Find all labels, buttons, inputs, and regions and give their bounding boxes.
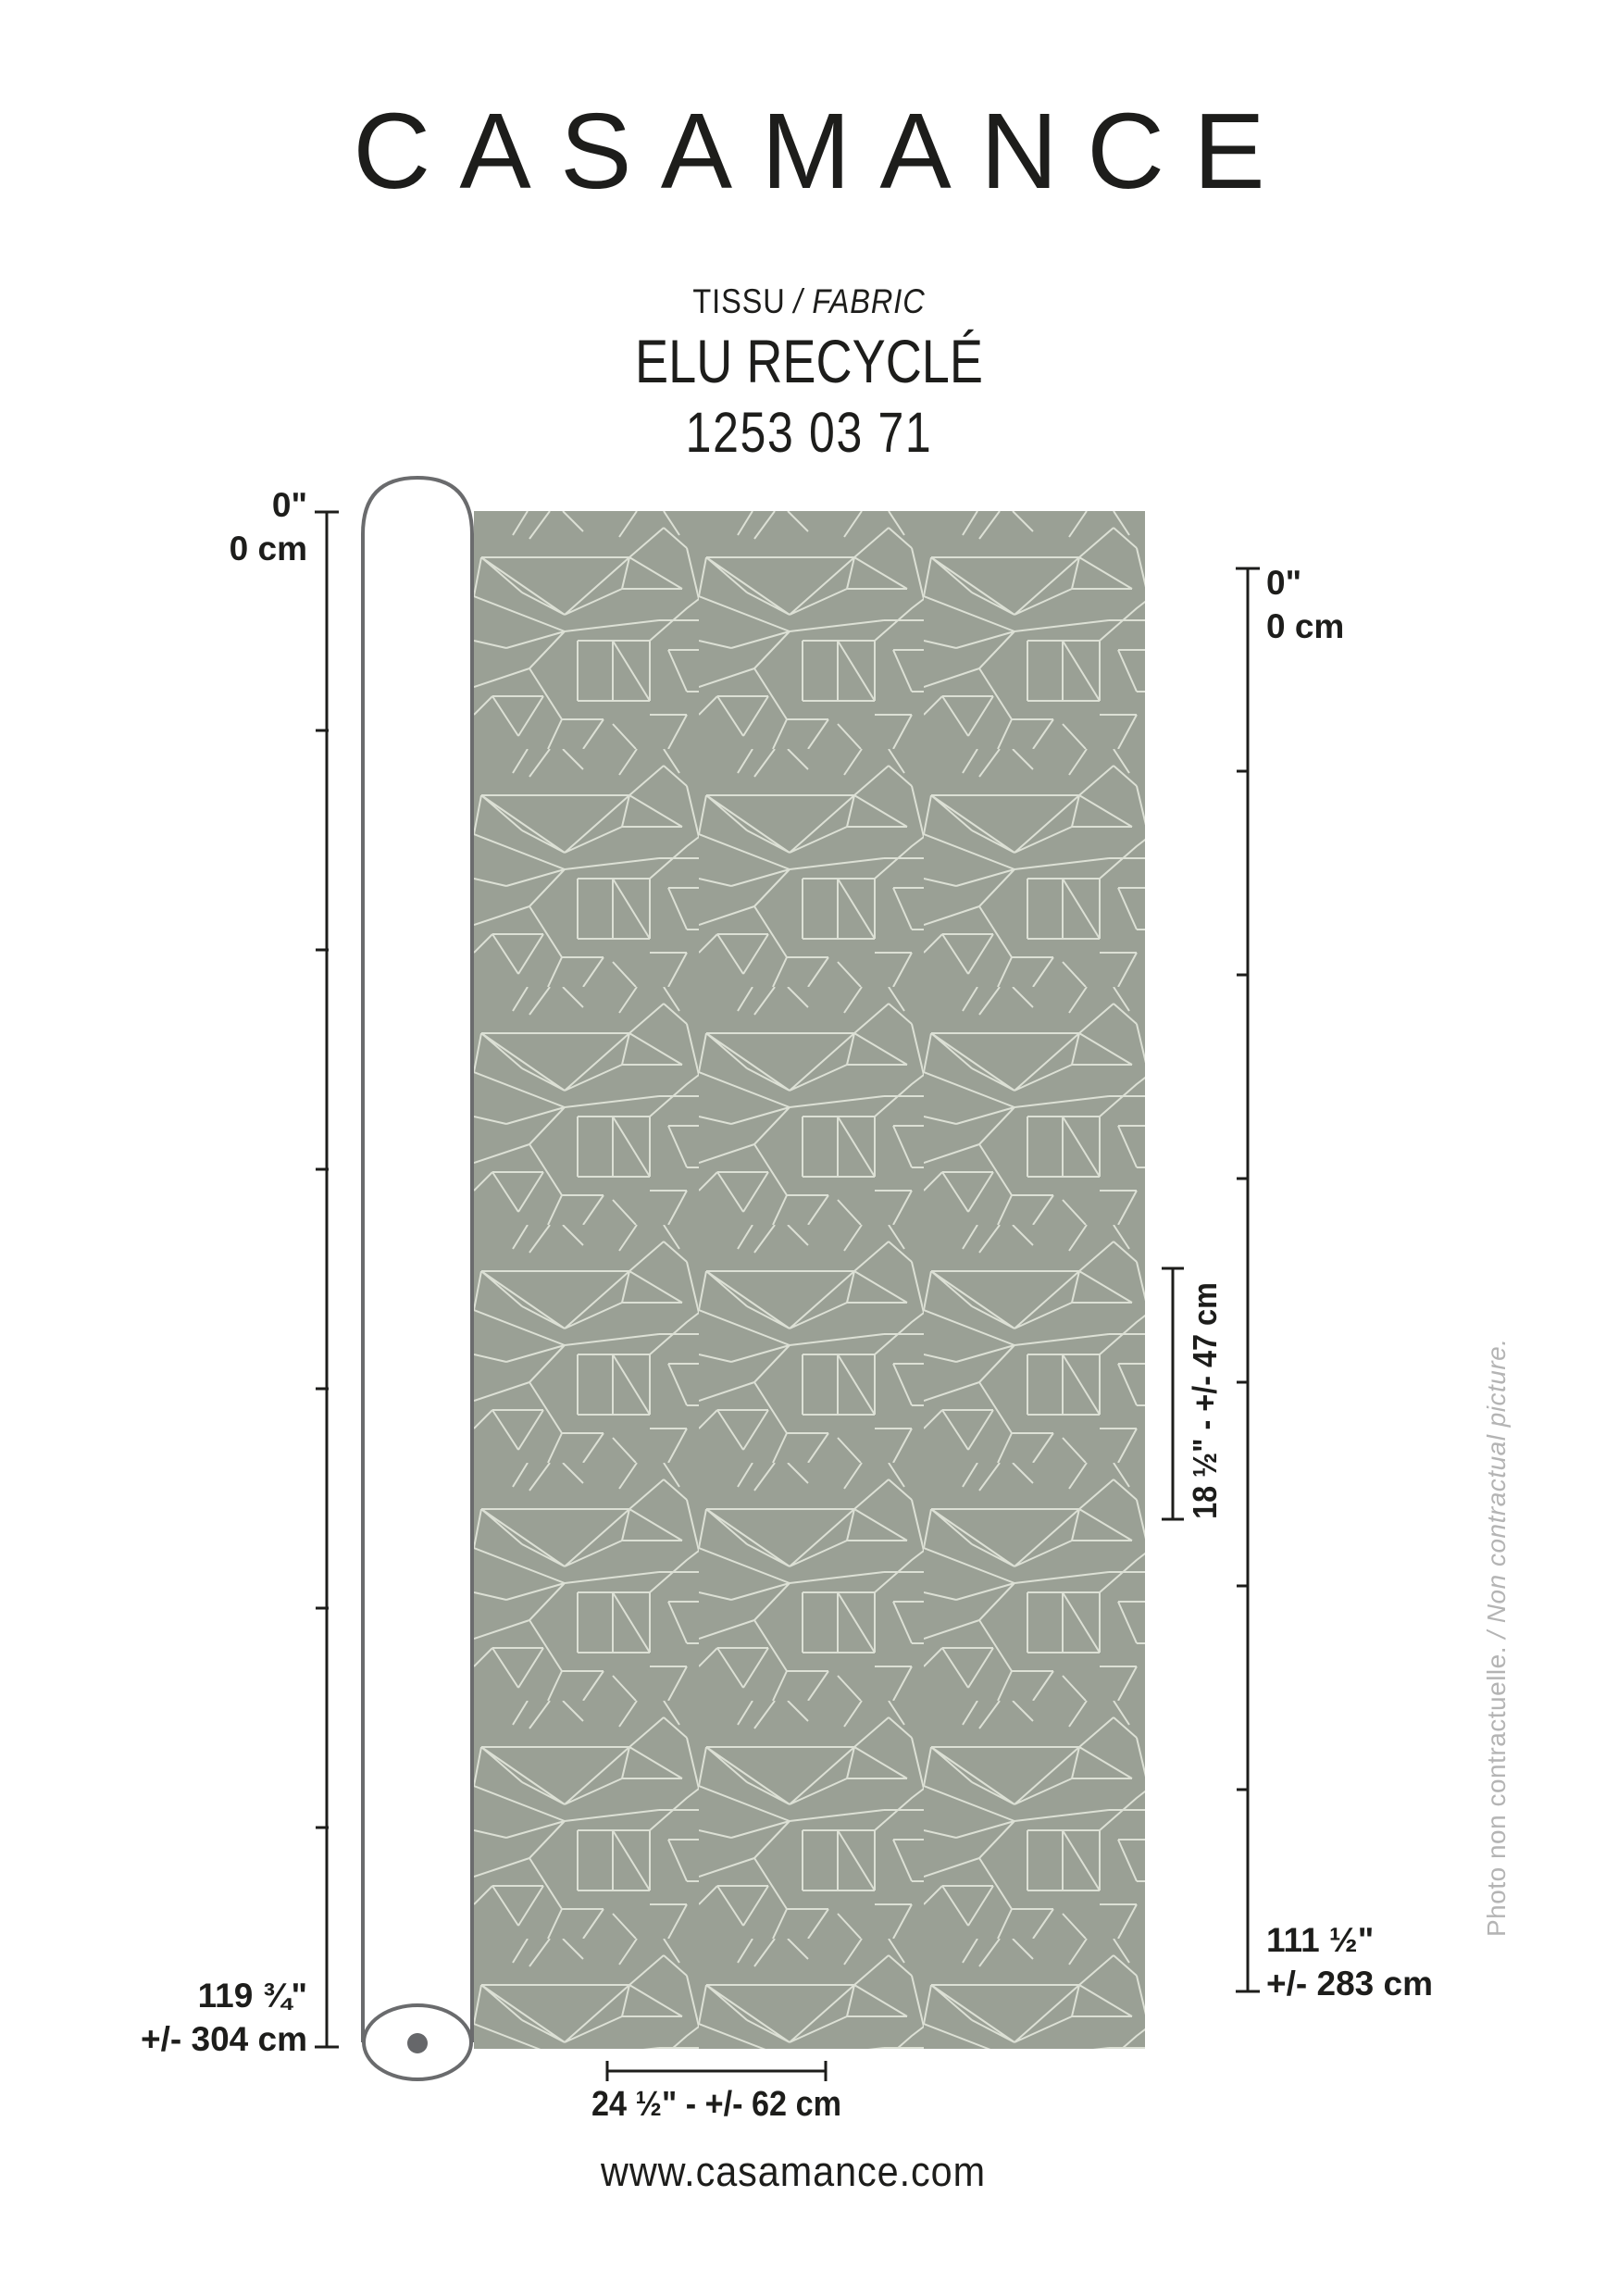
right-top-inches: 0" — [1266, 561, 1344, 605]
vertical-repeat-measure — [1162, 1267, 1184, 1520]
left-bottom-cm: +/- 304 cm — [85, 2017, 307, 2061]
left-bottom-inches: 119 ¾" — [85, 1974, 307, 2017]
fabric-spec-sheet: CASAMANCE TISSU/ FABRIC ELU RECYCLÉ 1253… — [0, 0, 1618, 2296]
horizontal-repeat-measure — [606, 2061, 827, 2081]
right-ruler — [1236, 568, 1260, 1992]
non-contractual-note: Photo non contractuelle. / Non contractu… — [1482, 1326, 1512, 1937]
roll-tube-body — [363, 478, 472, 2042]
right-bottom-inches: 111 ½" — [1266, 1918, 1433, 1962]
left-ruler — [315, 511, 339, 2048]
right-top-cm: 0 cm — [1266, 605, 1344, 648]
note-en: / Non contractual picture. — [1482, 1338, 1511, 1638]
left-top-inches: 0" — [85, 483, 307, 527]
roll-core-dot — [407, 2033, 428, 2053]
left-top-cm: 0 cm — [85, 527, 307, 570]
left-bottom-measurement: 119 ¾" +/- 304 cm — [85, 1974, 307, 2061]
vertical-repeat-label: 18 ½" - +/- 47 cm — [1185, 1276, 1226, 1526]
right-bottom-cm: +/- 283 cm — [1266, 1962, 1433, 2005]
left-top-measurement: 0" 0 cm — [85, 483, 307, 570]
right-top-measurement: 0" 0 cm — [1266, 561, 1344, 648]
right-bottom-measurement: 111 ½" +/- 283 cm — [1266, 1918, 1433, 2005]
horizontal-repeat-label: 24 ½" - +/- 62 cm — [583, 2085, 850, 2125]
fabric-roll — [363, 478, 472, 2079]
website-link[interactable]: www.casamance.com — [601, 2148, 941, 2196]
note-fr: Photo non contractuelle. — [1482, 1646, 1511, 1937]
